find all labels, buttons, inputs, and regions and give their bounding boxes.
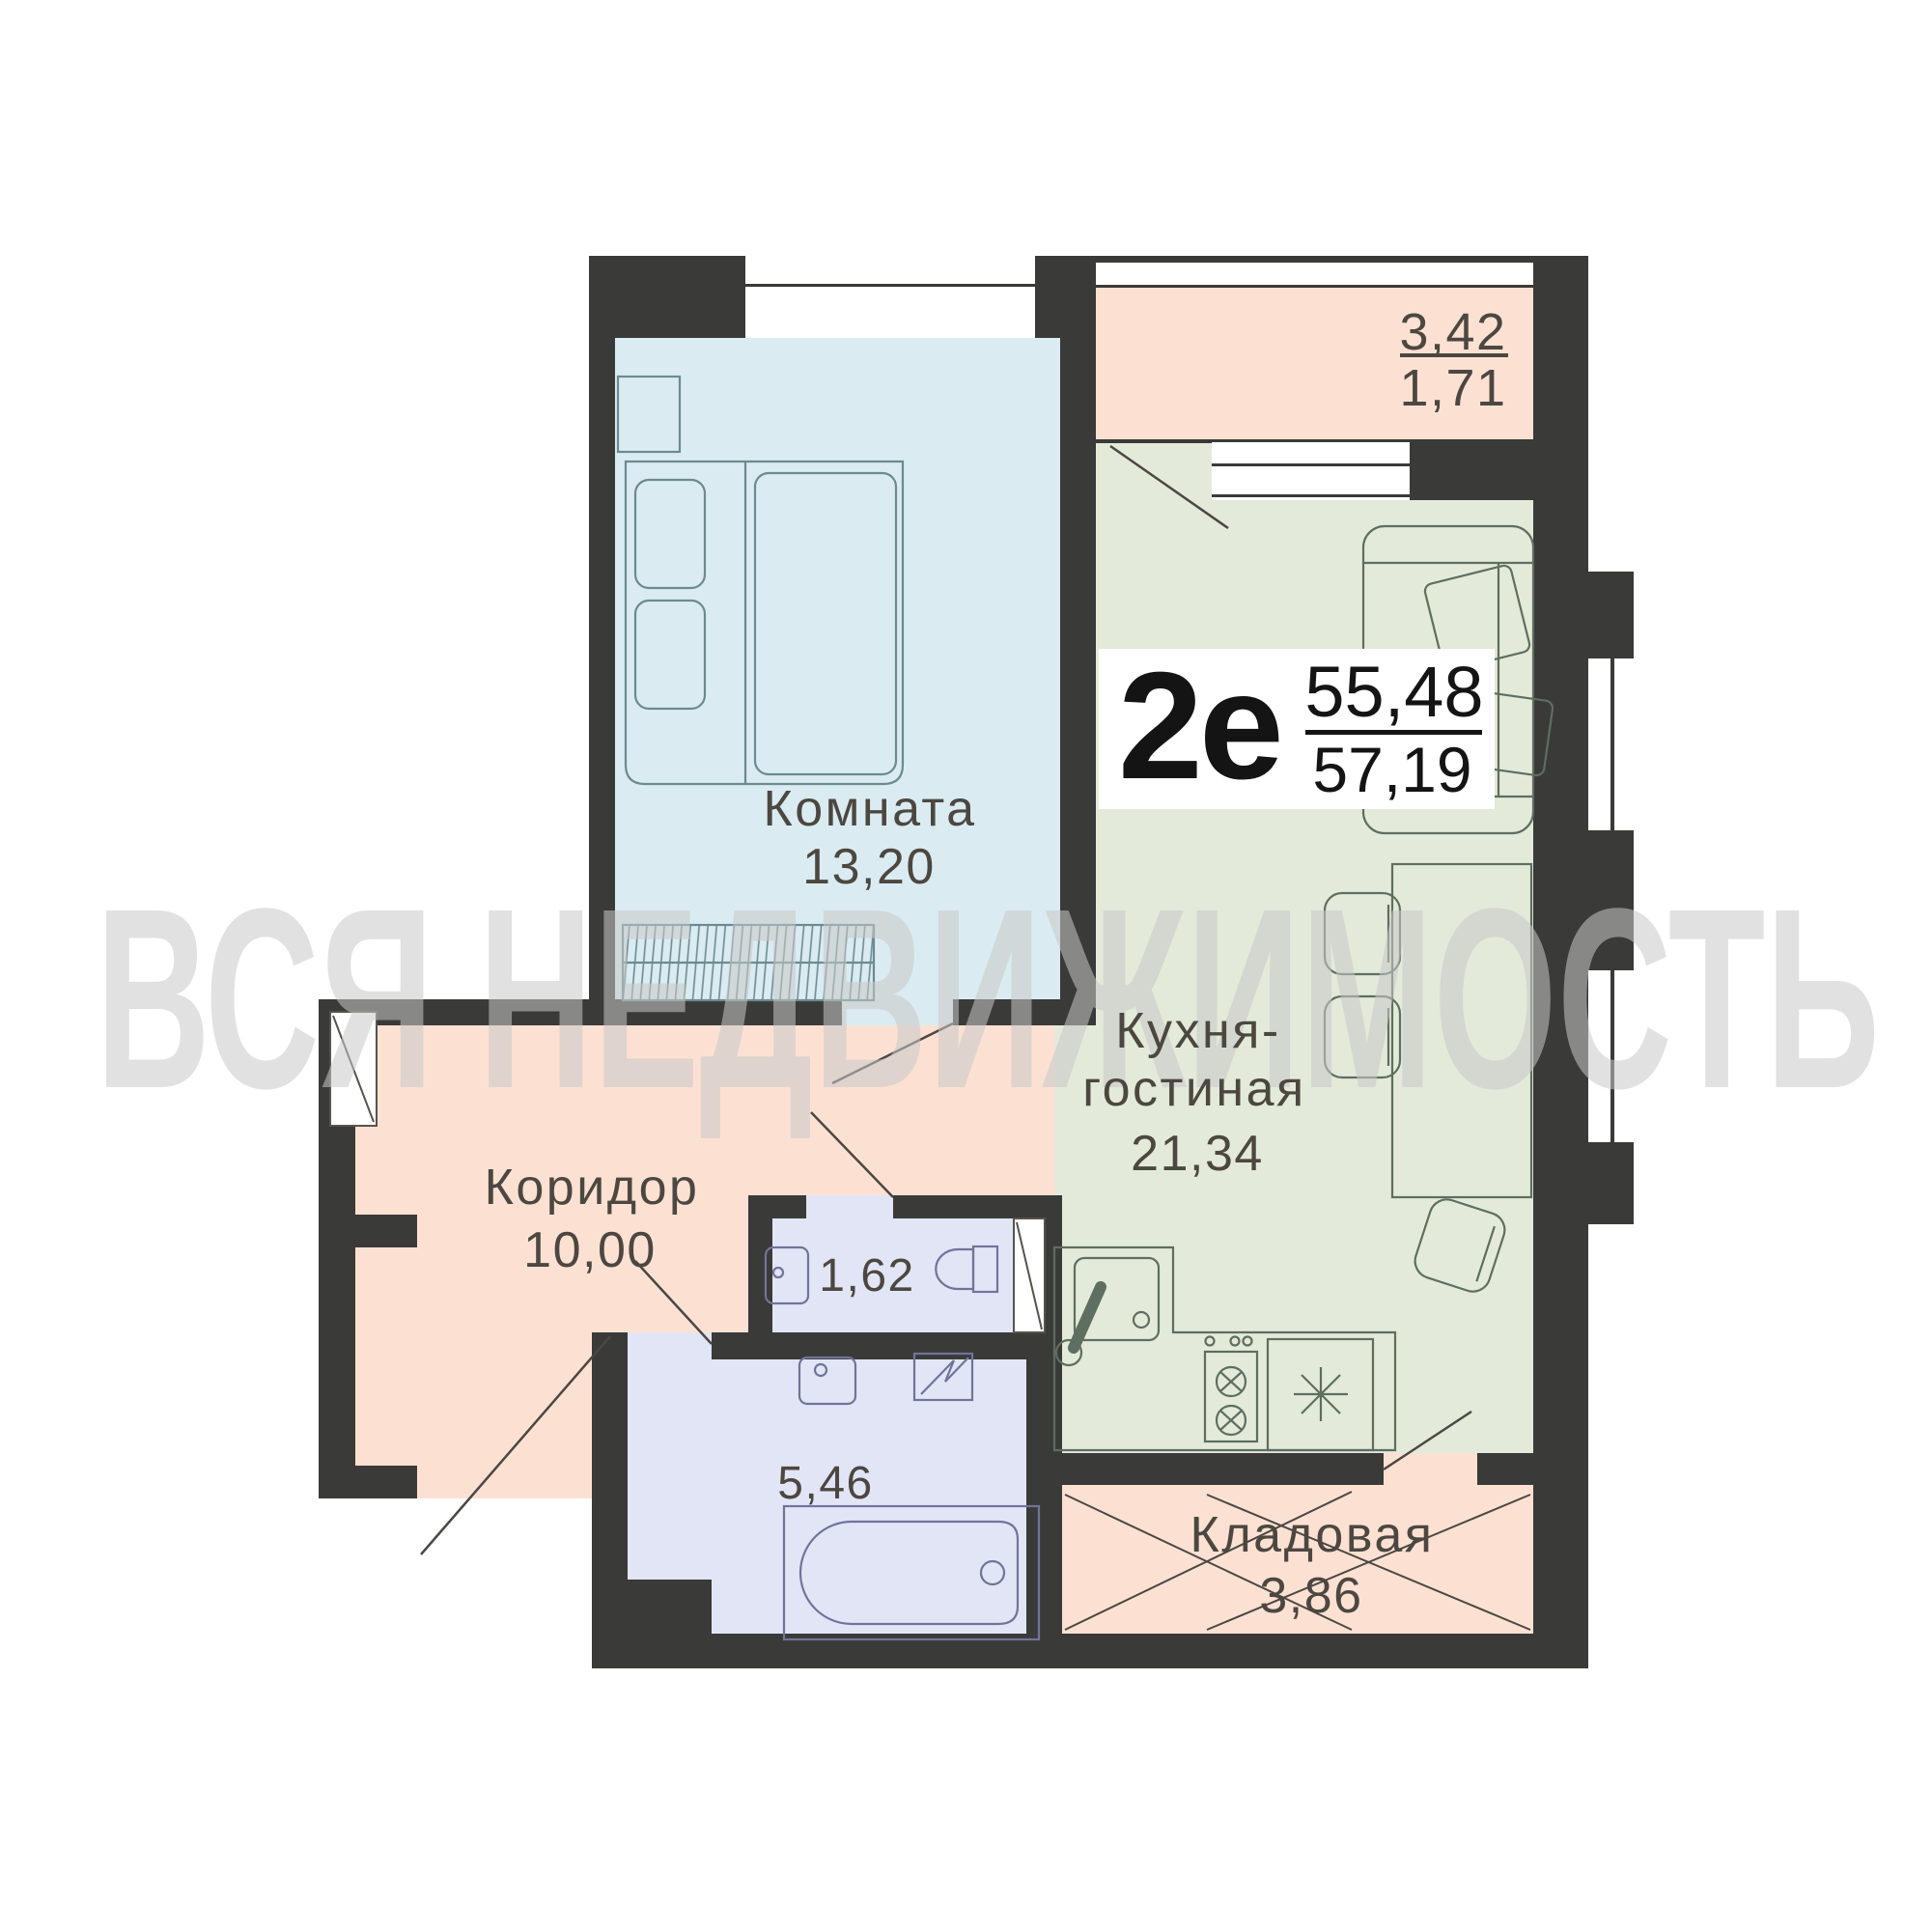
bathroom-area: 5,46	[777, 1458, 873, 1509]
unit-area-lower: 57,19	[1312, 734, 1471, 805]
corridor-label: Коридор	[485, 1160, 700, 1216]
balcony-area-lower: 1,71	[1399, 359, 1506, 417]
kitchen-label-line2: гостиная	[1082, 1061, 1305, 1117]
wc-area: 1,62	[819, 1250, 914, 1301]
kitchen-area: 21,34	[1131, 1126, 1264, 1182]
watermark-text: ВСЯ НЕДВИЖИМОСТЬ	[96, 855, 1880, 1142]
storage-door-threshold	[1384, 1453, 1477, 1485]
wc-door-threshold	[806, 1195, 893, 1218]
storage-label: Кладовая	[1190, 1507, 1435, 1563]
floorplan-image: ВСЯ НЕДВИЖИМОСТЬ Комната 13,20 Кухня- го…	[0, 0, 1932, 1931]
bedroom-area: 13,20	[802, 839, 936, 895]
storage-area: 3,86	[1259, 1568, 1362, 1624]
fridge-snowflake-icon	[1294, 1367, 1348, 1421]
watermark: ВСЯ НЕДВИЖИМОСТЬ	[96, 855, 1880, 1142]
unit-type-label: 2е	[1118, 641, 1280, 811]
unit-badge: 2е 55,48 57,19	[1099, 641, 1495, 811]
kitchen-label-line1: Кухня-	[1115, 1003, 1280, 1059]
unit-area-upper: 55,48	[1304, 652, 1483, 732]
balcony-area-upper: 3,42	[1399, 303, 1506, 361]
bathroom-door-threshold	[628, 1332, 712, 1359]
floorplan-page: ВСЯ НЕДВИЖИМОСТЬ Комната 13,20 Кухня- го…	[0, 0, 1932, 1931]
corridor-area: 10,00	[523, 1222, 657, 1278]
balcony-fraction-line	[1400, 353, 1508, 357]
bedroom-label: Комната	[763, 781, 976, 837]
